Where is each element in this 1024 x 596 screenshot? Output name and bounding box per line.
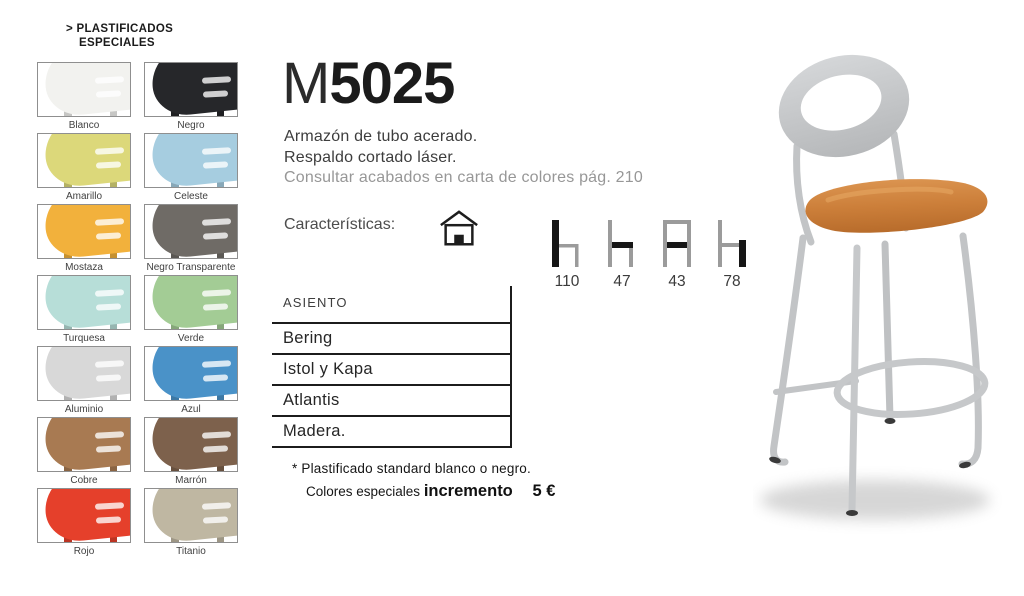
- seat-options-table: ASIENTO Bering Istol y Kapa Atlantis Mad…: [272, 286, 512, 448]
- swatch-cobre: Cobre: [37, 417, 131, 488]
- dimension-value: 43: [656, 273, 698, 291]
- table-row: Istol y Kapa: [272, 355, 510, 386]
- house-icon: [438, 208, 480, 255]
- swatch-image: [144, 62, 238, 117]
- swatch-image: [144, 204, 238, 259]
- swatch-image: [37, 417, 131, 472]
- swatch-label: Blanco: [37, 120, 131, 131]
- dimension-icons-row: 110 47 43 78: [546, 220, 753, 291]
- swatch-image: [37, 346, 131, 401]
- swatch-amarillo: Amarillo: [37, 133, 131, 204]
- swatch-label: Titanio: [144, 546, 238, 557]
- dimension-value: 47: [601, 273, 643, 291]
- chair-total-height-icon: [551, 220, 583, 268]
- dimension-width: 43: [656, 220, 698, 291]
- swatch-image: [37, 133, 131, 188]
- chair-seat-height-icon: [716, 220, 748, 268]
- swatch-label: Marrón: [144, 475, 238, 486]
- dimension-value: 78: [711, 273, 753, 291]
- seat-table-header: ASIENTO: [272, 286, 510, 324]
- swatch-label: Amarillo: [37, 191, 131, 202]
- table-row: Atlantis: [272, 386, 510, 417]
- swatch-label: Negro Transparente: [144, 262, 238, 273]
- product-description: Armazón de tubo acerado. Respaldo cortad…: [284, 127, 643, 189]
- product-photo-stool: [753, 48, 1015, 568]
- footnote-price-text: Colores especiales: [306, 484, 420, 499]
- dimension-seat-depth: 47: [601, 220, 643, 291]
- footnote-price-bold: incremento: [424, 482, 513, 500]
- description-line: Armazón de tubo acerado.: [284, 127, 643, 148]
- swatch-verde: Verde: [144, 275, 238, 346]
- section-header-line1: > PLASTIFICADOS: [66, 22, 173, 36]
- swatch-mostaza: Mostaza: [37, 204, 131, 275]
- swatch-blanco: Blanco: [37, 62, 131, 133]
- swatch-azul: Azul: [144, 346, 238, 417]
- swatch-image: [144, 133, 238, 188]
- section-header-line2: ESPECIALES: [66, 36, 173, 50]
- swatch-label: Rojo: [37, 546, 131, 557]
- swatch-label: Celeste: [144, 191, 238, 202]
- swatch-negro-transparente: Negro Transparente: [144, 204, 238, 275]
- swatch-label: Cobre: [37, 475, 131, 486]
- color-swatch-grid: Blanco Negro Amarillo: [37, 62, 238, 559]
- dimension-value: 110: [546, 273, 588, 291]
- stool-seat: [805, 179, 987, 233]
- model-number: 5025: [329, 51, 454, 116]
- description-line: Consultar acabados en carta de colores p…: [284, 168, 643, 189]
- swatch-label: Turquesa: [37, 333, 131, 344]
- swatch-image: [37, 204, 131, 259]
- section-header: > PLASTIFICADOS ESPECIALES: [66, 22, 173, 50]
- swatch-negro: Negro: [144, 62, 238, 133]
- swatch-image: [37, 488, 131, 543]
- swatch-aluminio: Aluminio: [37, 346, 131, 417]
- swatch-label: Aluminio: [37, 404, 131, 415]
- stool-shadow: [760, 480, 990, 520]
- swatch-label: Mostaza: [37, 262, 131, 273]
- swatch-image: [144, 275, 238, 330]
- swatch-image: [144, 488, 238, 543]
- swatch-image: [37, 275, 131, 330]
- swatch-image: [144, 417, 238, 472]
- swatch-image: [37, 62, 131, 117]
- footnote-price-value: 5 €: [533, 482, 556, 500]
- swatch-image: [144, 346, 238, 401]
- description-line: Respaldo cortado láser.: [284, 148, 643, 169]
- swatch-celeste: Celeste: [144, 133, 238, 204]
- swatch-label: Azul: [144, 404, 238, 415]
- features-label: Características:: [284, 216, 395, 234]
- swatch-rojo: Rojo: [37, 488, 131, 559]
- dimension-seat-height: 78: [711, 220, 753, 291]
- chair-width-icon: [661, 220, 693, 268]
- chair-seat-depth-icon: [606, 220, 638, 268]
- swatch-label: Verde: [144, 333, 238, 344]
- swatch-label: Negro: [144, 120, 238, 131]
- swatch-turquesa: Turquesa: [37, 275, 131, 346]
- catalog-page: > PLASTIFICADOS ESPECIALES Blanco Negro: [0, 0, 1024, 596]
- footnote-price: Colores especiales incremento 5 €: [306, 482, 555, 501]
- table-row: Madera.: [272, 417, 510, 448]
- swatch-titanio: Titanio: [144, 488, 238, 559]
- product-model-title: M5025: [282, 55, 454, 113]
- model-prefix: M: [282, 51, 329, 116]
- dimension-total-height: 110: [546, 220, 588, 291]
- table-row: Bering: [272, 324, 510, 355]
- swatch-marron: Marrón: [144, 417, 238, 488]
- footnote-standard: * Plastificado standard blanco o negro.: [292, 461, 531, 476]
